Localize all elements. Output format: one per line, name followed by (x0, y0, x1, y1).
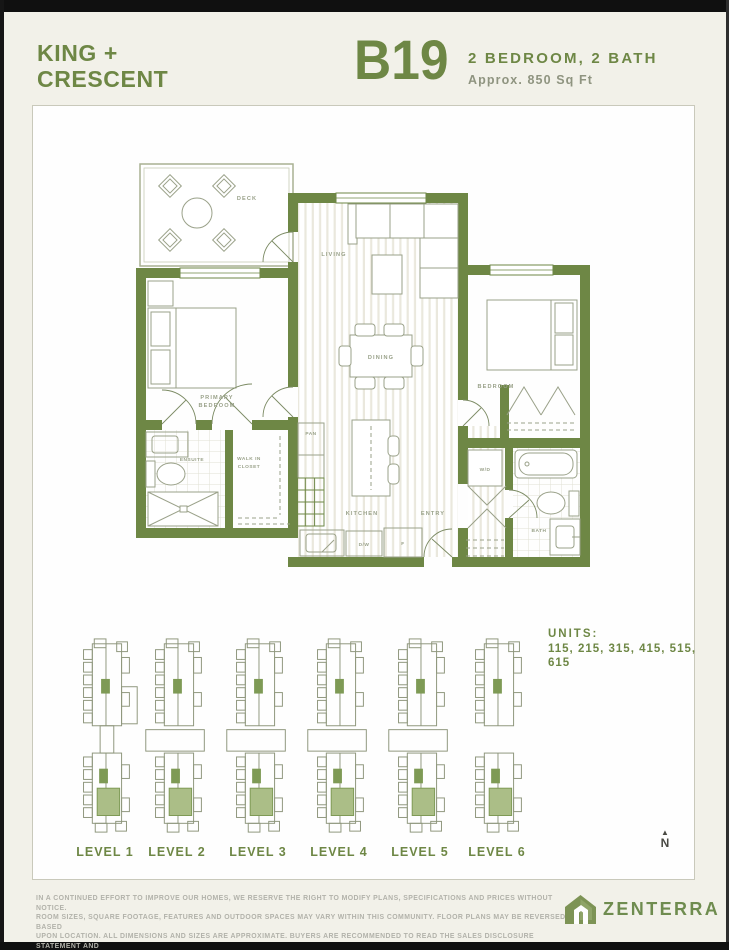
deck-label: DECK (237, 196, 257, 202)
coffee-table (372, 255, 402, 294)
project-title-line1: KING + (37, 40, 168, 66)
bath-toilet (537, 492, 565, 514)
level-diagram-6: LEVEL 6 (461, 636, 533, 859)
left-black-bar (0, 0, 4, 950)
level-diagram-4: LEVEL 4 (303, 636, 375, 859)
ensuite-toilet (157, 463, 185, 485)
washer-dryer-label: W/D (480, 467, 491, 473)
nightstand (148, 281, 173, 306)
plan-area: Approx. 850 Sq Ft (468, 73, 593, 87)
disclaimer-line: ROOM SIZES, SQUARE FOOTAGE, FEATURES AND… (36, 913, 581, 932)
building-footprint-level-3 (223, 636, 293, 836)
kitchen-label: KITCHEN (346, 511, 379, 517)
primary-bedroom-label-2: BEDROOM (199, 403, 236, 409)
ensuite-label: ENSUITE (180, 457, 205, 463)
top-black-bar (0, 0, 729, 12)
disclaimer-line: UPON LOCATION. ALL DIMENSIONS AND SIZES … (36, 932, 581, 950)
primary-bedroom-label-1: PRIMARY (200, 395, 233, 401)
deck-table (182, 198, 212, 228)
walkin-label-2: CLOSET (238, 464, 260, 470)
pantry-label: PAN (305, 431, 316, 437)
building-footprint-level-6 (462, 636, 532, 836)
fridge-label: F (401, 541, 404, 547)
brand-logo: ZENTERRA (565, 895, 720, 924)
zenterra-house-icon (565, 895, 596, 924)
building-footprint-level-4 (304, 636, 374, 836)
units-value: 115, 215, 315, 415, 515, 615 (548, 642, 700, 671)
living-label: LIVING (321, 252, 346, 258)
level-diagram-5: LEVEL 5 (384, 636, 456, 859)
dining-label: DINING (368, 355, 394, 361)
building-footprint-level-1 (70, 636, 140, 836)
level-label-6: LEVEL 6 (461, 845, 533, 859)
units-label: UNITS: (548, 627, 700, 642)
north-indicator: ▲ N (653, 829, 677, 849)
disclaimer: IN A CONTINUED EFFORT TO IMPROVE OUR HOM… (36, 894, 581, 950)
level-label-3: LEVEL 3 (222, 845, 294, 859)
entry-label: ENTRY (421, 511, 445, 517)
level-diagram-1: LEVEL 1 (69, 636, 141, 859)
floorplan: DECK LIVING DINING KITCHEN ENTRY PRIMARY… (130, 145, 605, 595)
building-footprint-level-2 (142, 636, 212, 836)
closet-doors (507, 387, 541, 415)
plan-spec: 2 BEDROOM, 2 BATH (468, 50, 658, 67)
bath-label: BATH (532, 528, 547, 534)
level-label-4: LEVEL 4 (303, 845, 375, 859)
bedroom-label: BEDROOM (478, 384, 515, 390)
plan-code: B19 (354, 27, 449, 92)
level-diagram-3: LEVEL 3 (222, 636, 294, 859)
floorplan-flyer: KING + CRESCENT B19 2 BEDROOM, 2 BATH Ap… (0, 0, 729, 950)
disclaimer-line: IN A CONTINUED EFFORT TO IMPROVE OUR HOM… (36, 894, 581, 913)
level-label-5: LEVEL 5 (384, 845, 456, 859)
sofa (356, 204, 458, 238)
units-note: UNITS: 115, 215, 315, 415, 515, 615 (548, 627, 700, 671)
dishwasher-label: D/W (359, 542, 370, 548)
level-label-1: LEVEL 1 (69, 845, 141, 859)
walkin-label-1: WALK IN (237, 456, 261, 462)
brand-wordmark: ZENTERRA (603, 899, 720, 920)
building-footprint-level-5 (385, 636, 455, 836)
project-title-line2: CRESCENT (37, 66, 168, 92)
project-title: KING + CRESCENT (37, 40, 168, 92)
level-diagram-2: LEVEL 2 (141, 636, 213, 859)
level-label-2: LEVEL 2 (141, 845, 213, 859)
north-letter: N (653, 837, 677, 849)
primary-bed (148, 308, 236, 388)
